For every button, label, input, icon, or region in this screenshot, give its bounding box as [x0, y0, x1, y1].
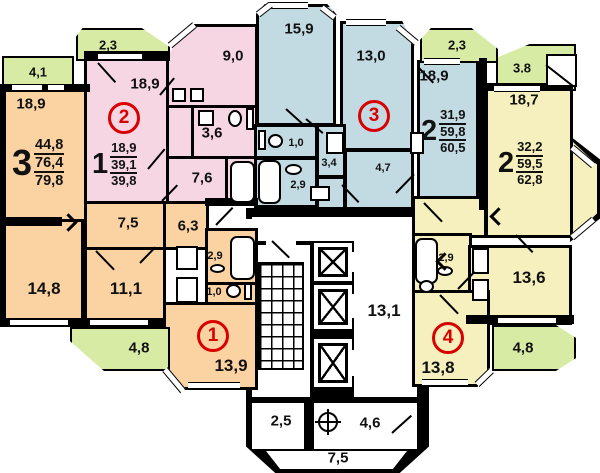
kitchen-sink-icon	[190, 88, 204, 102]
closet-icon	[176, 277, 198, 303]
bath-area-label: 2,9	[438, 252, 453, 264]
elevator-door-opening	[348, 350, 354, 376]
toilet-icon	[268, 134, 283, 148]
apt1-total-area: 79,8	[34, 173, 64, 189]
kitchen-area-label: 13,8	[421, 358, 454, 378]
apt1-room-14-8	[0, 219, 84, 327]
balcony-area-label: 4,8	[513, 340, 534, 357]
bathtub-icon	[258, 160, 281, 204]
elevator-door-opening	[348, 294, 354, 318]
apt1-number-badge: 1	[197, 320, 229, 352]
floor-plan: 4,1 18,9 2,3 18,9 9,0 15,9 13,0 2,3 3.8 …	[0, 0, 600, 473]
window	[90, 319, 148, 326]
room-area-label: 15,9	[284, 21, 313, 38]
closet-icon	[326, 132, 344, 154]
room-area-label: 13,0	[356, 48, 385, 65]
bath-area-label: 3,6	[202, 125, 223, 142]
room-area-label: 18,9	[130, 76, 159, 93]
apt2-areas-label: 1 18,9 39,1 39,8	[92, 141, 137, 189]
chute-area-label: 4,6	[360, 415, 381, 432]
wc-area-label: 1,0	[288, 137, 303, 149]
apt1-living-area: 44,8	[34, 137, 64, 155]
cistern-icon	[258, 130, 266, 150]
corridor-area-label: 3,4	[321, 157, 336, 169]
closet-icon	[310, 186, 330, 201]
apt3-hall-4-7	[344, 149, 414, 210]
stove-icon	[172, 88, 186, 102]
bath-area-label: 2,9	[290, 179, 305, 191]
apt2-usable-area: 39,1	[110, 158, 137, 175]
window	[10, 319, 68, 326]
apt3-areas-label: 2 31,9 59,8 60,5	[421, 108, 466, 156]
apt3-usable-area: 59,8	[439, 125, 466, 142]
window	[346, 19, 386, 26]
toilet-icon	[226, 284, 241, 298]
kitchen-area-label: 13,9	[214, 356, 247, 376]
apt4-total-area: 62,8	[516, 173, 543, 188]
hall-area-label: 4,7	[375, 162, 390, 174]
room-area-label: 13,6	[512, 268, 545, 288]
wc-area-label: 1,0	[206, 286, 221, 298]
hall-area-label: 6,3	[178, 218, 199, 235]
room-area-label: 11,1	[110, 279, 142, 299]
hall-area-label: 13,1	[367, 301, 400, 321]
balcony-area-label: 3.8	[513, 61, 531, 76]
apt2-total-area: 39,8	[110, 174, 137, 189]
sink-icon	[210, 264, 225, 273]
apt4-rooms-type: 2	[498, 149, 514, 178]
apt4-living-area: 32,2	[516, 140, 543, 157]
refuse-chute-icon	[315, 409, 341, 435]
apt1-rooms-type: 3	[12, 145, 32, 181]
kitchen-area-label: 9,0	[223, 48, 244, 65]
apt2-number-badge: 2	[108, 102, 140, 134]
closet-icon	[472, 279, 489, 301]
toilet-icon	[228, 110, 242, 127]
apt3-number-badge: 3	[358, 100, 390, 132]
cistern-icon	[244, 283, 252, 300]
elevator-icon	[318, 289, 348, 325]
apt1-usable-area: 76,4	[34, 155, 64, 173]
bath-area-label: 2,9	[207, 250, 222, 262]
window	[48, 84, 64, 91]
cistern-icon	[246, 108, 254, 130]
window	[188, 382, 240, 389]
apt3-living-area: 31,9	[439, 108, 466, 125]
corridor-area-label: 7,6	[192, 170, 213, 187]
bathtub-icon	[230, 236, 255, 280]
balcony-area-label: 2,3	[448, 38, 466, 53]
balcony-area-label: 2,3	[99, 38, 117, 53]
window	[498, 317, 556, 324]
apt2-rooms-type: 1	[92, 150, 108, 179]
window	[12, 84, 42, 91]
entrance-area-label: 7,5	[328, 450, 349, 467]
window	[268, 2, 308, 9]
apt4-usable-area: 59,5	[516, 157, 543, 174]
room-area-label: 18,7	[509, 92, 538, 109]
window	[424, 58, 460, 65]
elevator-icon	[318, 343, 348, 383]
wall	[479, 58, 487, 210]
closet-icon	[176, 246, 198, 270]
door-swing-icon	[215, 207, 233, 226]
window	[98, 53, 142, 60]
bathtub-icon	[230, 161, 255, 203]
stairs-icon	[258, 262, 304, 370]
window	[422, 379, 468, 386]
wall	[0, 217, 62, 226]
apt4-areas-label: 2 32,2 59,5 62,8	[498, 140, 543, 188]
room-area-label: 18,9	[419, 68, 448, 85]
balcony-hatch-icon	[546, 54, 577, 87]
corridor-area-label: 7,5	[118, 215, 139, 232]
sink-icon	[285, 164, 302, 175]
apt4-number-badge: 4	[432, 322, 464, 354]
wall	[0, 84, 6, 327]
closet-icon	[472, 248, 489, 274]
elevator-door-opening	[348, 252, 354, 272]
apt2-living-area: 18,9	[110, 141, 137, 158]
toilet-icon	[419, 280, 434, 293]
apt3-total-area: 60,5	[439, 141, 466, 156]
room-area-label: 14,8	[27, 279, 60, 299]
apt4-balcony-4-8	[492, 325, 576, 371]
balcony-area-label: 4,8	[129, 340, 150, 357]
elevator-icon	[318, 247, 348, 277]
apt1-areas-label: 3 44,8 76,4 79,8	[12, 137, 64, 190]
apt3-rooms-type: 2	[421, 117, 437, 146]
balcony-area-label: 4,1	[29, 65, 47, 80]
room-area-label: 18,9	[16, 96, 45, 113]
vestibule-area-label: 2,5	[271, 413, 292, 430]
apt1-balcony-4-8	[70, 327, 170, 371]
